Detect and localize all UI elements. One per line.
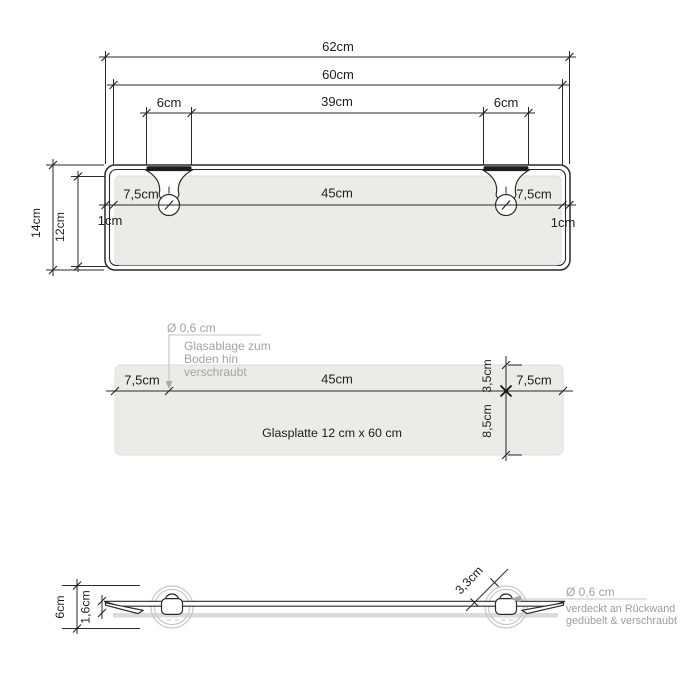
dim-label-inset-left: 7,5cm	[123, 187, 158, 202]
plate-dim-label-back-depth: 8,5cm	[480, 404, 494, 438]
dim-label-inset-right: 7,5cm	[516, 187, 551, 202]
bracket-wall-plate-left	[147, 166, 192, 170]
plate-view: Ø 0,6 cm Glasablage zum Boden hin versch…	[106, 321, 573, 461]
plate-screw-diameter-label: Ø 0,6 cm	[167, 321, 216, 335]
dim-label-mount-height: 6cm	[53, 595, 67, 618]
screw-block-left	[162, 599, 183, 615]
mount-note-line1: verdeckt an Rückwand	[566, 603, 675, 615]
dim-label-edge-right: 1cm	[551, 215, 576, 230]
plate-dim-label-front-depth: 3,5cm	[480, 359, 494, 393]
dim-label-front-thickness: 1,6cm	[79, 590, 93, 624]
dim-label-bracket-right: 6cm	[494, 95, 519, 110]
front-view: 6cm 1,6cm 3,3cm Ø 0,6 cm verdeckt an Rüc…	[53, 563, 677, 634]
top-view: 62cm 60cm 6cm 39cm 6cm	[29, 39, 576, 276]
screw-block-right	[496, 599, 517, 615]
drawing-canvas: 62cm 60cm 6cm 39cm 6cm	[0, 0, 699, 700]
dim-label-total-width: 62cm	[322, 39, 354, 54]
plate-dim-label-screw-span: 45cm	[321, 372, 353, 387]
plate-note-line2: Boden hin	[184, 352, 238, 366]
technical-drawing-page: 62cm 60cm 6cm 39cm 6cm	[0, 0, 699, 700]
dim-label-screw-span: 45cm	[321, 186, 353, 201]
dim-label-edge-left: 1cm	[98, 213, 123, 228]
dim-label-diagonal: 3,3cm	[452, 563, 485, 597]
dim-label-bracket-left: 6cm	[157, 95, 182, 110]
mount-note-line2: gedübelt & verschraubt	[566, 615, 677, 627]
plate-dim-label-inset-right: 7,5cm	[516, 373, 551, 388]
dim-label-total-depth: 14cm	[29, 208, 43, 238]
plate-size-label: Glasplatte 12 cm x 60 cm	[262, 426, 402, 440]
bracket-wall-plate-right	[484, 166, 529, 170]
plate-note-line3: verschraubt	[184, 365, 247, 379]
dim-label-between-brackets: 39cm	[321, 94, 353, 109]
mount-screw-diameter-label: Ø 0,6 cm	[566, 585, 615, 599]
plate-note-line1: Glasablage zum	[184, 339, 271, 353]
dim-label-glass-depth: 12cm	[53, 212, 67, 242]
plate-dim-label-inset-left: 7,5cm	[124, 373, 159, 388]
dim-label-glass-width: 60cm	[322, 67, 354, 82]
